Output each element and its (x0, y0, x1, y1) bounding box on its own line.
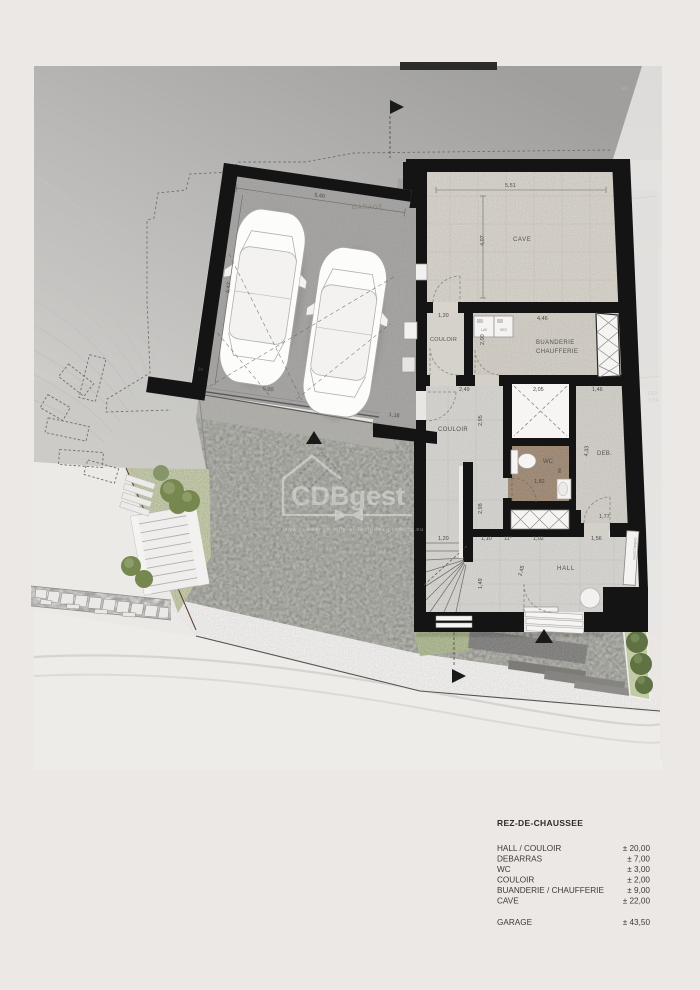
svg-text:1,46: 1,46 (592, 387, 603, 393)
svg-text:GARAGE: GARAGE (497, 918, 533, 927)
svg-text:1,02: 1,02 (533, 536, 544, 542)
svg-text:2,05: 2,05 (533, 387, 544, 393)
svg-text:80: 80 (557, 467, 562, 473)
svg-text:1,49: 1,49 (478, 578, 484, 589)
svg-text:± 2,00: ± 2,00 (627, 876, 650, 885)
svg-text:2,00: 2,00 (480, 334, 486, 345)
svg-text:REZ-DE-CHAUSSEE: REZ-DE-CHAUSSEE (497, 818, 583, 828)
svg-text:BUANDERIE: BUANDERIE (536, 340, 575, 346)
svg-text:4,33: 4,33 (584, 446, 591, 457)
svg-text:2,98: 2,98 (478, 503, 484, 514)
svg-text:DEB.: DEB. (597, 451, 612, 457)
svg-text:CHA: CHA (648, 398, 659, 404)
svg-text:1,10: 1,10 (481, 536, 492, 542)
svg-text:± 22,00: ± 22,00 (623, 897, 651, 906)
svg-text:1,77: 1,77 (599, 514, 610, 520)
svg-text:SEC: SEC (500, 328, 508, 332)
svg-text:1,20: 1,20 (438, 536, 449, 542)
svg-text:HALL: HALL (557, 565, 575, 572)
svg-text:2,95: 2,95 (478, 415, 484, 426)
svg-text:DEBARRAS: DEBARRAS (497, 855, 543, 864)
svg-text:± 3,00: ± 3,00 (627, 865, 650, 874)
svg-text:1,56: 1,56 (591, 536, 602, 542)
svg-text:± 9,00: ± 9,00 (627, 886, 650, 895)
svg-text:± 43,50: ± 43,50 (623, 918, 651, 927)
svg-text:DEB: DEB (648, 391, 659, 397)
svg-text:5,51: 5,51 (505, 183, 516, 189)
svg-text:± 20,00: ± 20,00 (623, 844, 651, 853)
svg-text:HALL / COULOIR: HALL / COULOIR (497, 844, 561, 853)
svg-text:2,49: 2,49 (459, 387, 470, 393)
svg-text:CHAUFFERIE: CHAUFFERIE (536, 349, 578, 355)
svg-text:BUANDERIE / CHAUFFERIE: BUANDERIE / CHAUFFERIE (497, 886, 604, 895)
svg-text:LAV: LAV (481, 328, 488, 332)
svg-text:www.residence-ville-et-facilit: www.residence-ville-et-facilities-produi… (282, 527, 424, 533)
svg-text:WC: WC (543, 459, 554, 465)
svg-text:WC: WC (497, 865, 511, 874)
svg-text:4,46: 4,46 (537, 316, 548, 322)
svg-text:CAVE: CAVE (497, 897, 519, 906)
svg-text:GARAGE: GARAGE (352, 204, 383, 211)
svg-text:1,20: 1,20 (438, 313, 449, 319)
svg-text:CAVE: CAVE (513, 237, 531, 243)
svg-text:COULOIR: COULOIR (430, 337, 457, 343)
svg-text:COULOIR: COULOIR (497, 876, 534, 885)
svg-text:COULOIR: COULOIR (438, 427, 468, 433)
svg-text:..: .. (636, 82, 639, 88)
svg-text:a t: a t (622, 86, 628, 92)
svg-text:± 7,00: ± 7,00 (627, 855, 650, 864)
svg-text:1,82: 1,82 (534, 479, 545, 485)
svg-text:CDBgest: CDBgest (291, 481, 405, 511)
